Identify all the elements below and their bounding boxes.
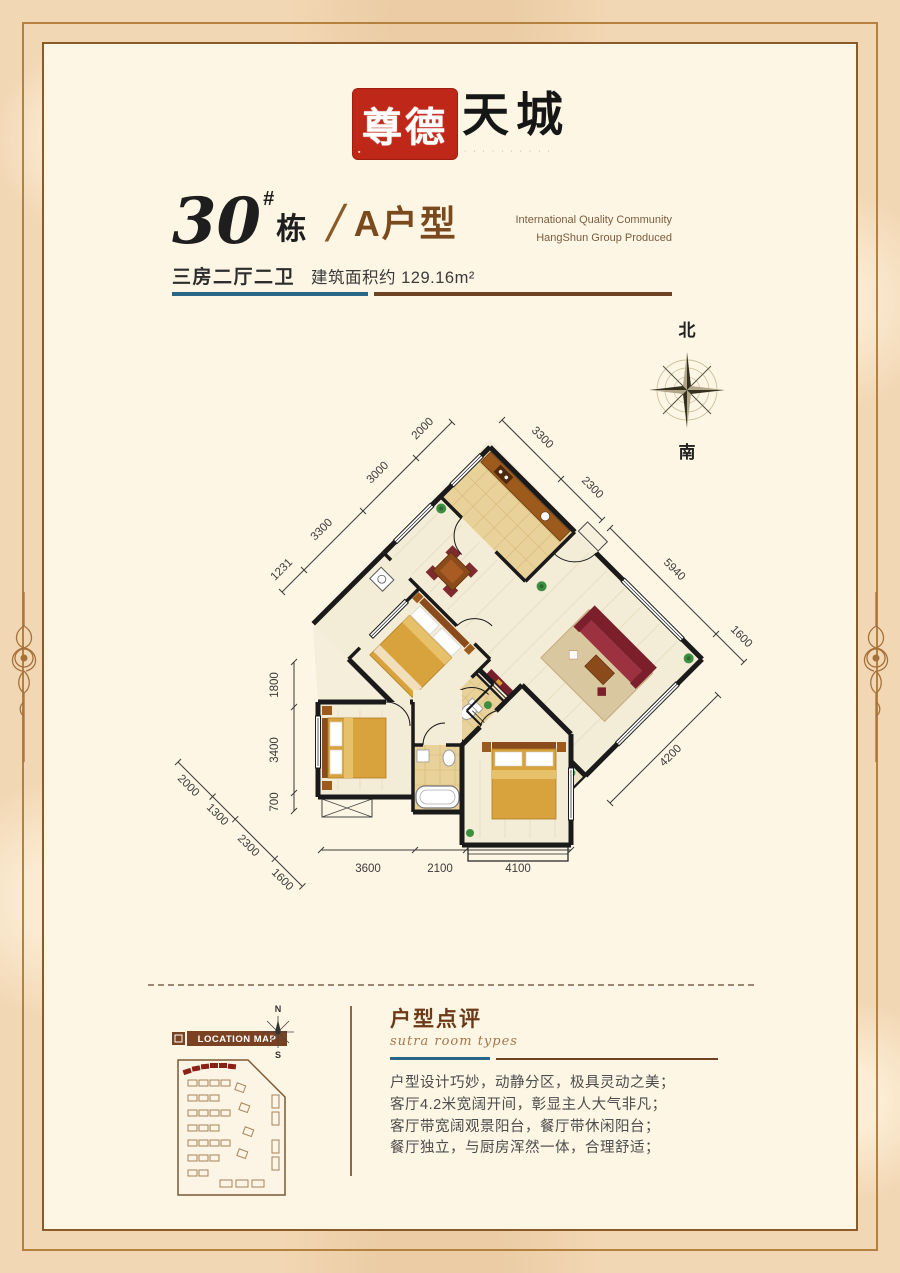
english-tagline-line2: HangShun Group Produced: [440, 230, 672, 248]
bed-bedroom-1: [482, 742, 566, 819]
dim-label: 2300: [235, 833, 262, 860]
brand-wordmark: 天城: [462, 92, 570, 139]
poster-page: 尊德 ▪ 天城 · · · · · · · · · · 30#栋/A户型 Int…: [0, 0, 900, 1273]
bathtub: [416, 786, 459, 808]
dim-label: 3400: [269, 737, 281, 763]
dim-label: 2300: [579, 475, 606, 502]
building-hash: #: [263, 188, 274, 210]
dim-label: 1231: [269, 557, 296, 584]
compass-north-label: 北: [679, 321, 696, 340]
dim-label: 1600: [728, 624, 755, 651]
map-compass-icon: N S: [262, 1004, 294, 1060]
ac-platform: [322, 799, 372, 817]
dim-label: 4100: [505, 863, 531, 875]
dim-label: 3300: [309, 517, 336, 544]
building-unit-word: 栋: [276, 213, 306, 246]
area-label: 建筑面积约: [311, 269, 396, 287]
seal-corner-mark: ▪: [358, 149, 360, 156]
inner-hall: [413, 690, 462, 746]
toilet-2: [443, 750, 455, 766]
review-lines: 户型设计巧妙，动静分区，极具灵动之美； 客厅4.2米宽阔开间，彰显主人大气非凡；…: [390, 1073, 725, 1160]
location-map: LOCATION MAP N S: [160, 1000, 400, 1210]
review-subtitle: sutra room types: [390, 1034, 725, 1049]
dim-label: 1800: [269, 672, 281, 698]
map-compass-south: S: [275, 1050, 281, 1060]
bed-bedroom-3: [322, 706, 386, 790]
header-rule-brown: [374, 292, 672, 296]
review-line: 餐厅独立，与厨房浑然一体，合理舒适；: [390, 1138, 725, 1160]
right-frame-ornament: [860, 592, 892, 762]
brand-seal-text: 尊德: [362, 95, 448, 153]
floor-plan: 1231 3300 3000 2000 3300 2300 5940 1600 …: [170, 400, 790, 920]
dim-label: 1600: [269, 867, 296, 894]
vertical-divider: [350, 1006, 352, 1176]
map-compass-north: N: [275, 1004, 282, 1014]
axis-wing: [316, 685, 574, 861]
basin: [417, 750, 429, 762]
dim-label: 3300: [529, 425, 556, 452]
dim-label: 2000: [175, 773, 202, 800]
review-rule-brown: [496, 1058, 718, 1060]
bay-window: [468, 847, 568, 861]
dim-label: 4200: [658, 743, 685, 770]
section-separator: [148, 984, 754, 986]
dim-label: 700: [269, 792, 281, 811]
location-map-badge-icon: [172, 1032, 185, 1045]
review-title: 户型点评: [390, 1008, 725, 1031]
dim-label: 2100: [427, 863, 453, 875]
review-rule-teal: [390, 1057, 490, 1060]
unit-subtitle: 三房二厅二卫建筑面积约 129.16m²: [172, 262, 475, 289]
dim-label: 3600: [355, 863, 381, 875]
room-spec: 三房二厅二卫: [172, 267, 295, 288]
left-frame-ornament: [8, 592, 40, 762]
dim-label: 2000: [410, 416, 437, 443]
area-value: 129.16m²: [401, 269, 475, 287]
dim-label: 1300: [204, 802, 231, 829]
area-text: 建筑面积约 129.16m²: [311, 269, 475, 287]
dim-label: 5940: [661, 557, 688, 584]
building-number: 30: [172, 184, 261, 259]
dim-label: 3000: [365, 460, 392, 487]
location-map-title: LOCATION MAP: [198, 1034, 277, 1045]
review-section: 户型点评 sutra room types 户型设计巧妙，动静分区，极具灵动之美…: [390, 1008, 725, 1160]
review-rule: [390, 1057, 725, 1061]
brand-tagline: · · · · · · · · · ·: [464, 148, 552, 155]
review-line: 户型设计巧妙，动静分区，极具灵动之美；: [390, 1073, 725, 1095]
english-tagline-line1: International Quality Community: [440, 212, 672, 230]
title-divider: /: [328, 194, 344, 248]
plant: [466, 829, 474, 837]
header-rule-teal: [172, 292, 368, 296]
review-line: 客厅带宽阔观景阳台，餐厅带休闲阳台；: [390, 1117, 725, 1139]
english-tagline: International Quality Community HangShun…: [440, 212, 672, 247]
brand-seal: 尊德 ▪: [352, 88, 458, 160]
review-line: 客厅4.2米宽阔开间，彰显主人大气非凡；: [390, 1095, 725, 1117]
page-title: 30#栋/A户型: [172, 188, 458, 266]
